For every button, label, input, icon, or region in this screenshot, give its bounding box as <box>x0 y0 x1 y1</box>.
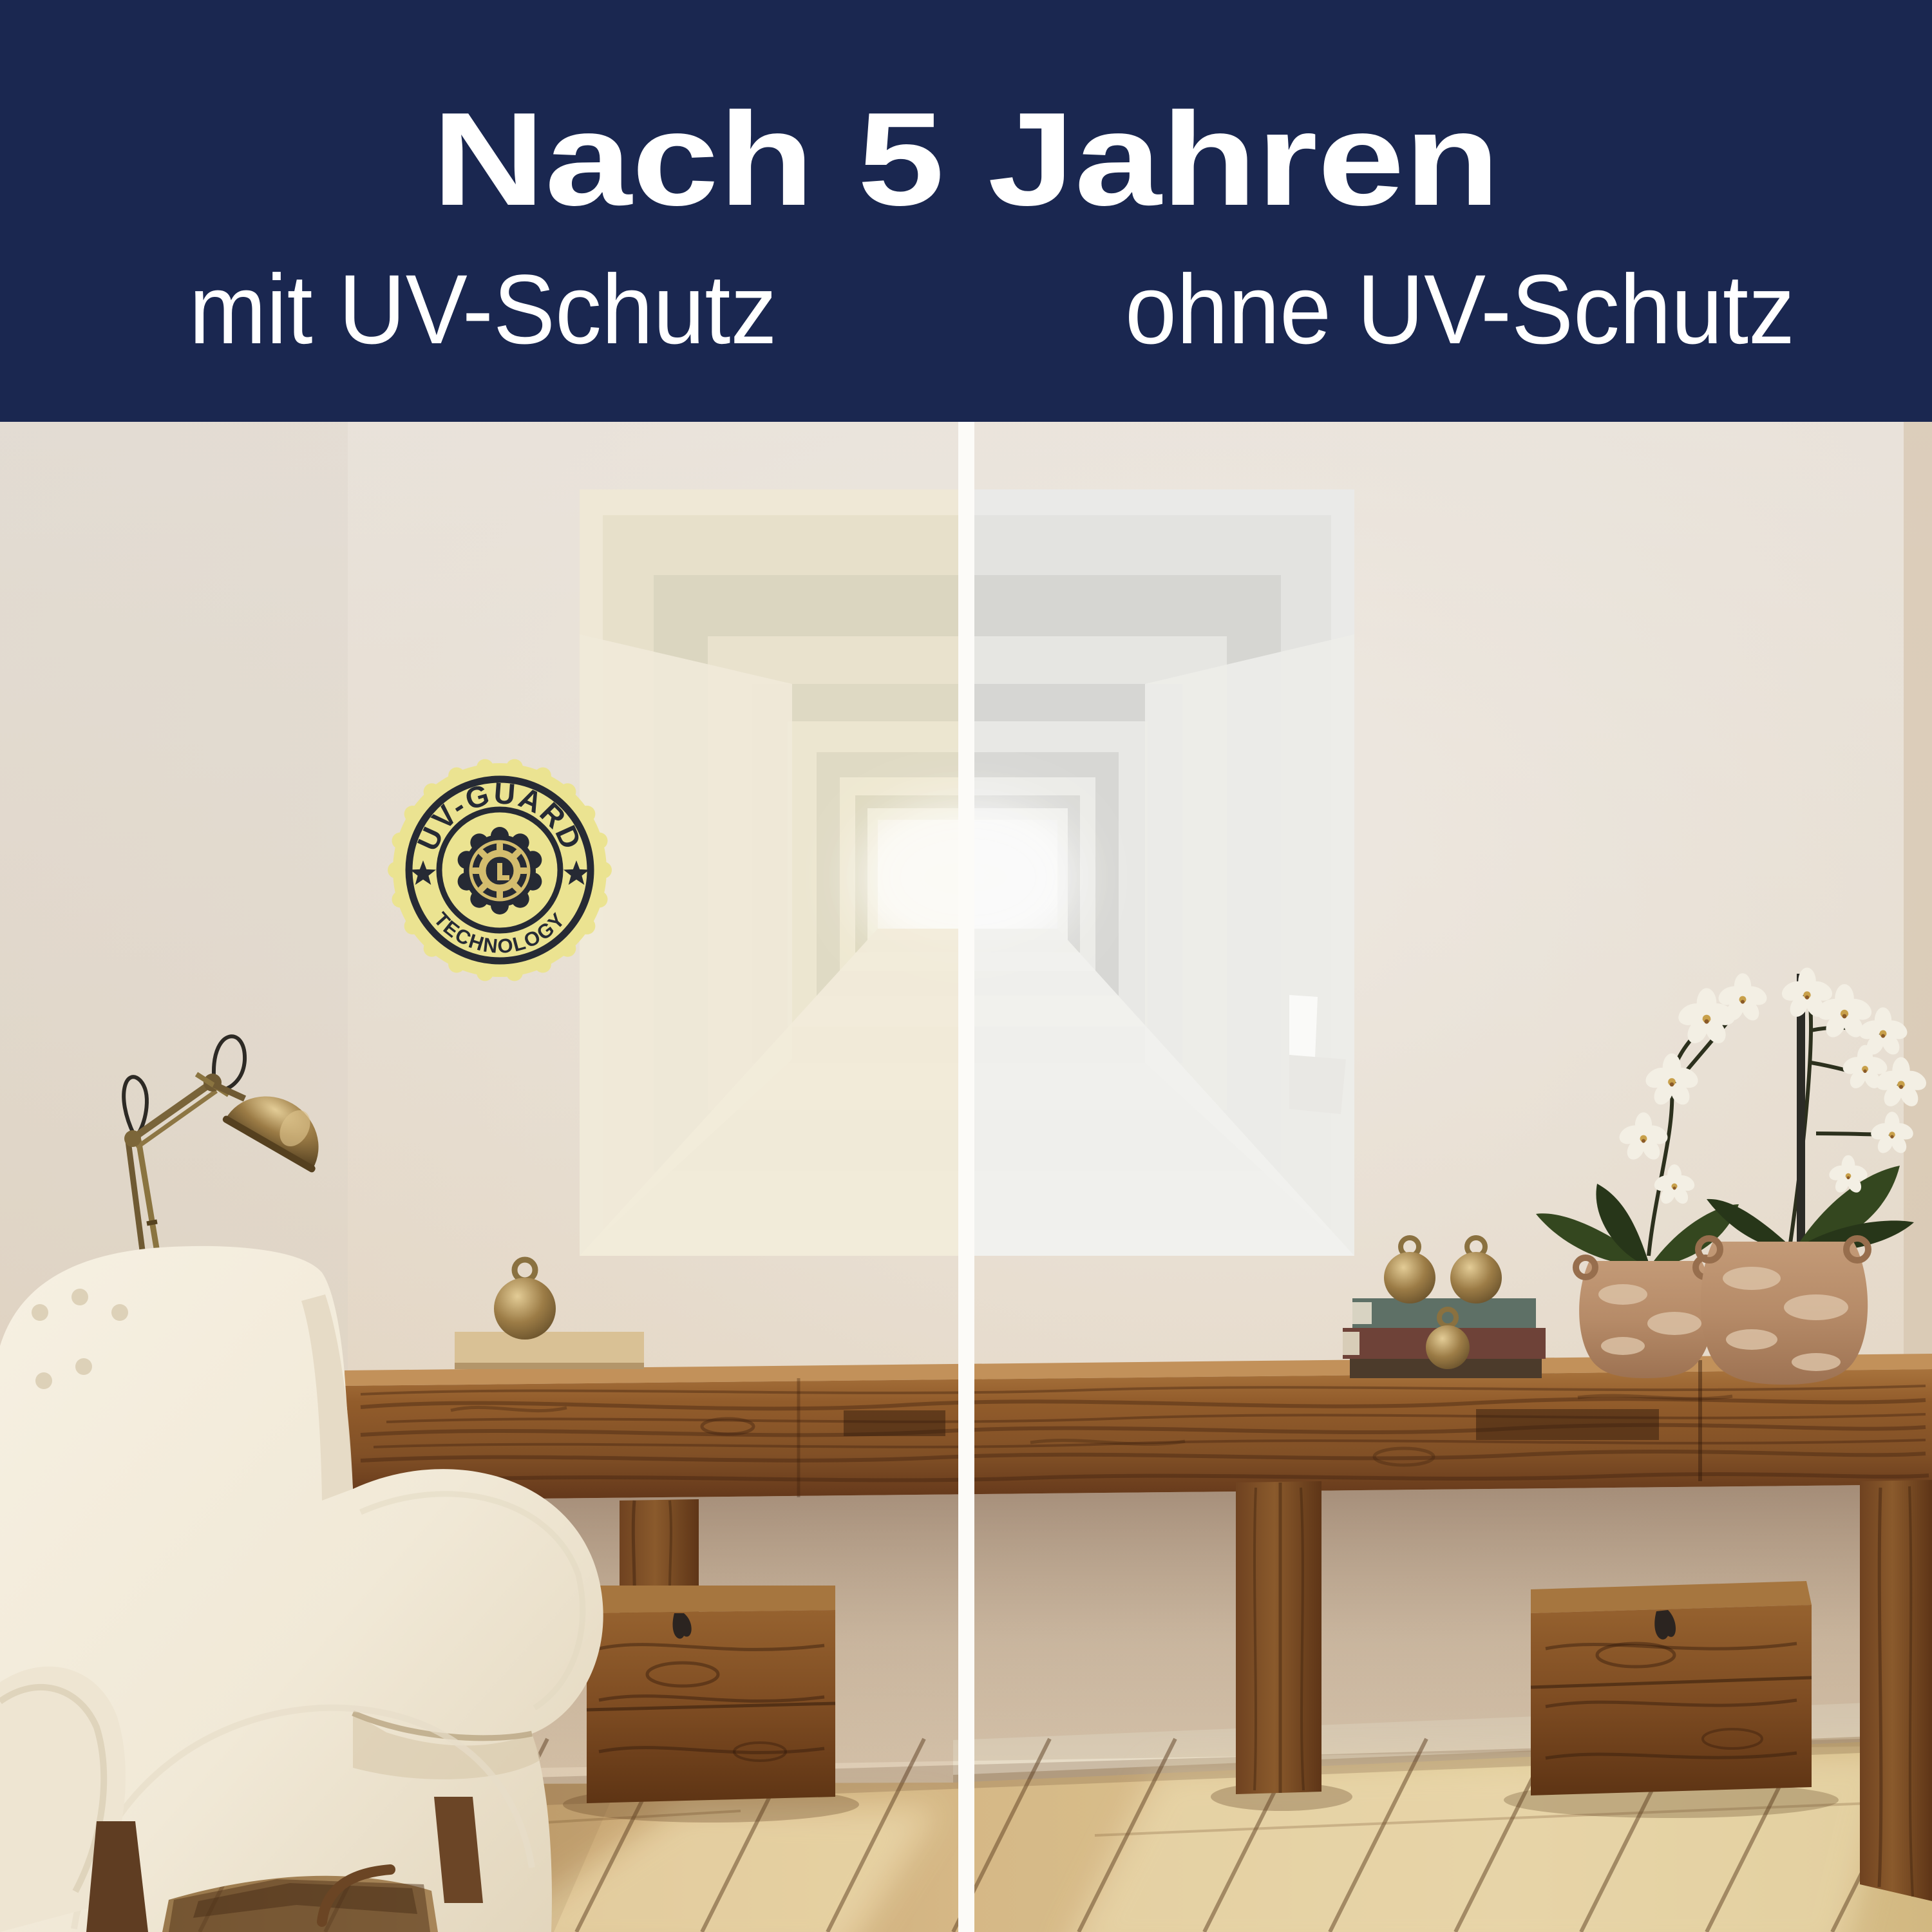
svg-text:Nach 5 Jahren: Nach 5 Jahren <box>432 85 1500 233</box>
svg-text:mit UV-Schutz: mit UV-Schutz <box>189 254 777 365</box>
svg-text:ohne UV-Schutz: ohne UV-Schutz <box>1125 254 1795 365</box>
